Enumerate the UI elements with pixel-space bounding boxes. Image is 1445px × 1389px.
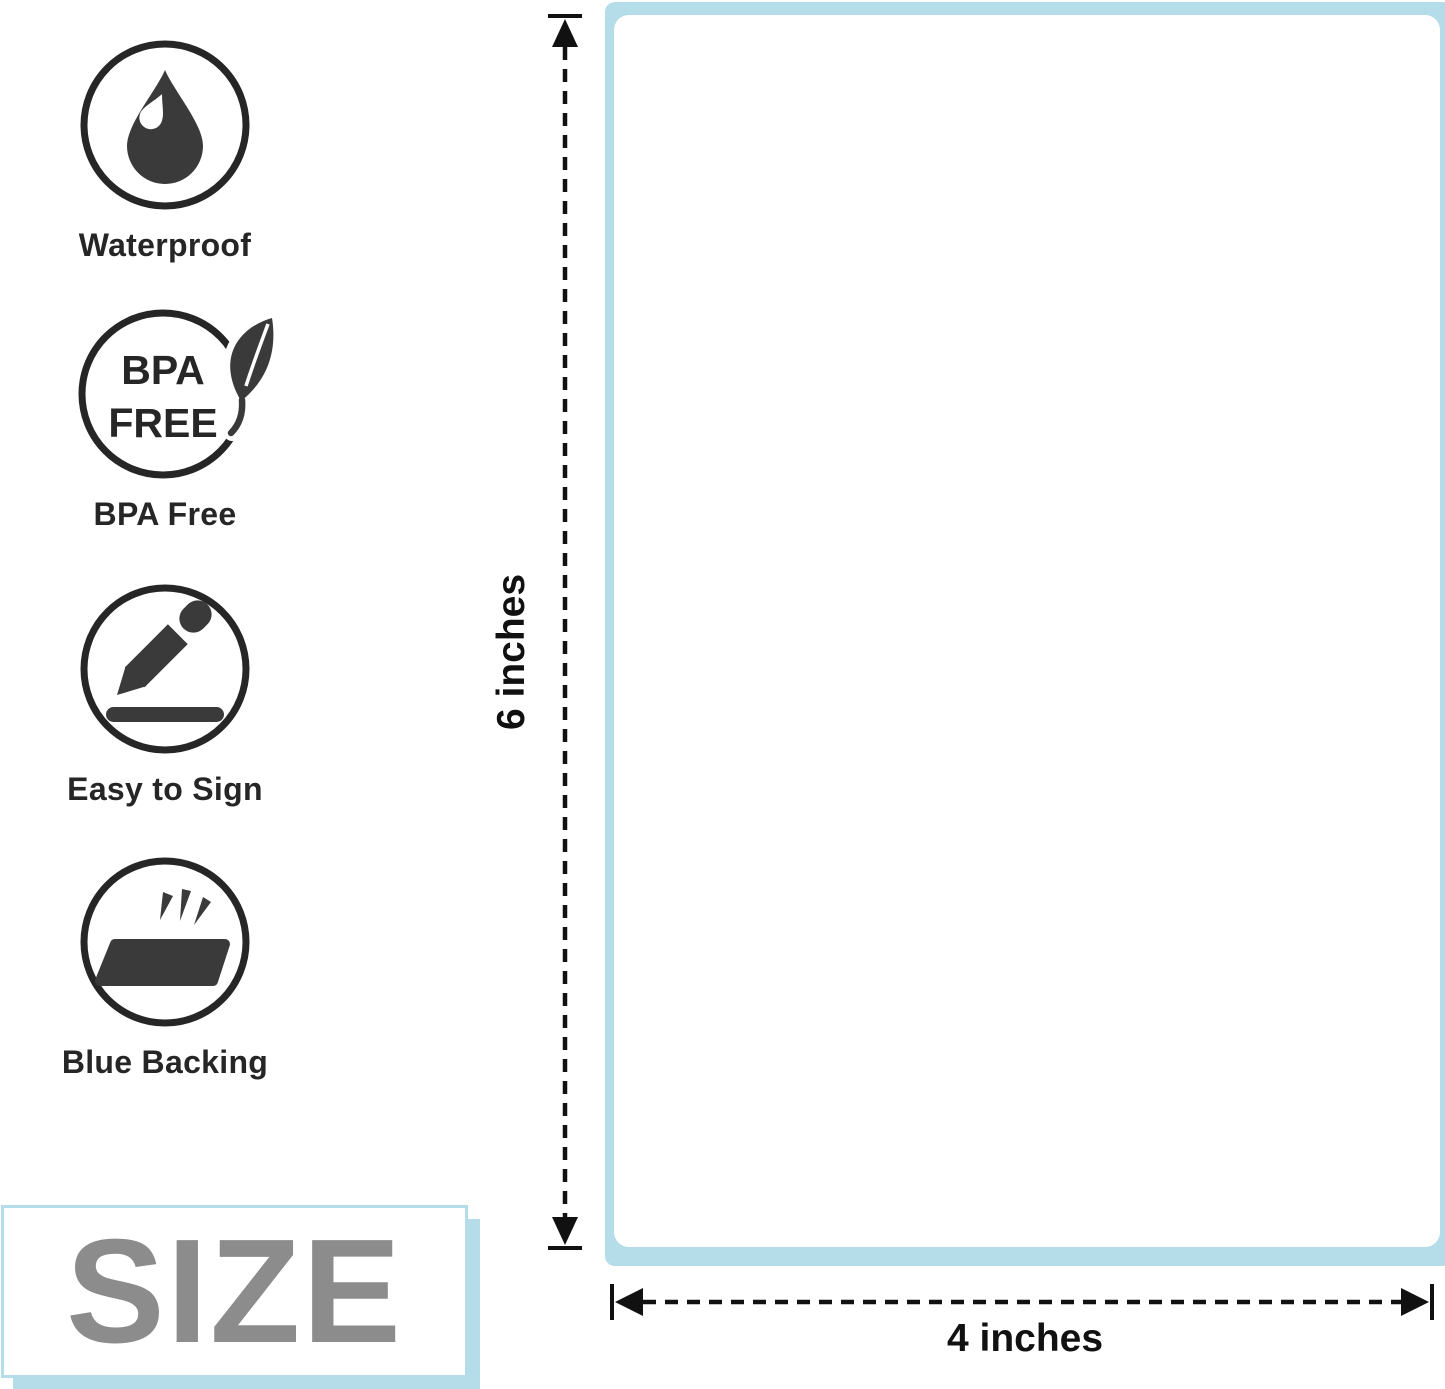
water-drop-icon (55, 38, 275, 213)
feature-easy-to-sign: Easy to Sign (0, 582, 330, 808)
width-dimension-label: 4 inches (947, 1317, 1103, 1361)
height-dimension-arrow (543, 12, 587, 1252)
feature-label-bpa-free: BPA Free (0, 496, 330, 533)
feature-blue-backing: Blue Backing (0, 855, 330, 1081)
bpa-free-icon: BPA FREE (55, 307, 275, 482)
bpa-badge-line2: FREE (108, 400, 217, 446)
height-dimension-label: 6 inches (490, 574, 534, 730)
size-badge: SIZE (1, 1205, 468, 1378)
label-backing-icon (55, 855, 275, 1030)
feature-label-blue-backing: Blue Backing (0, 1044, 330, 1081)
feature-label-waterproof: Waterproof (0, 227, 330, 264)
label-blank-face (614, 15, 1440, 1247)
feature-waterproof: Waterproof (0, 38, 330, 264)
pen-sign-icon (55, 582, 275, 757)
product-size-infographic: Waterproof BPA FREE BPA Free Easy to Sig… (0, 0, 1445, 1389)
bpa-badge-line1: BPA (121, 347, 205, 393)
label-preview (605, 2, 1445, 1266)
size-badge-label: SIZE (66, 1218, 403, 1366)
feature-label-easy-to-sign: Easy to Sign (0, 771, 330, 808)
feature-bpa-free: BPA FREE BPA Free (0, 307, 330, 533)
